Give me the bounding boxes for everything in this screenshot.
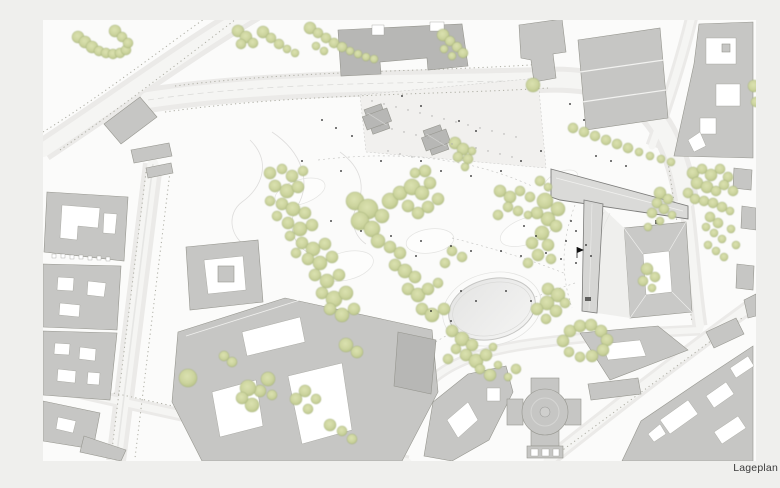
site-plan-page: Lageplan [0,0,780,488]
courtyard-building [624,222,692,318]
site-plan-drawing [43,20,756,461]
plan-caption: Lageplan [733,461,778,475]
site-plan-svg [43,20,756,461]
building-annotation-mark [585,297,591,301]
